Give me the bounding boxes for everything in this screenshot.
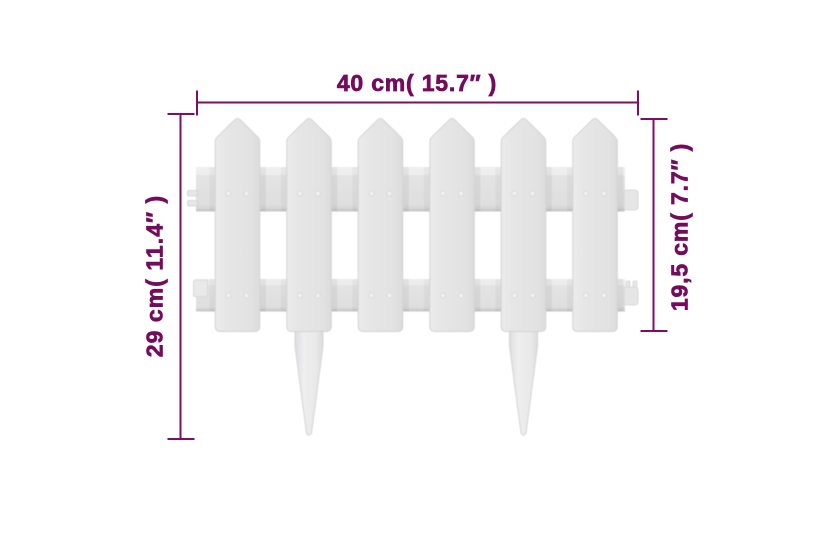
svg-text:40 cm( 15.7″ ): 40 cm( 15.7″ ) — [337, 70, 497, 96]
svg-text:19,5 cm( 7.7″ ): 19,5 cm( 7.7″ ) — [667, 143, 693, 311]
svg-text:29 cm( 11.4″ ): 29 cm( 11.4″ ) — [142, 195, 168, 358]
